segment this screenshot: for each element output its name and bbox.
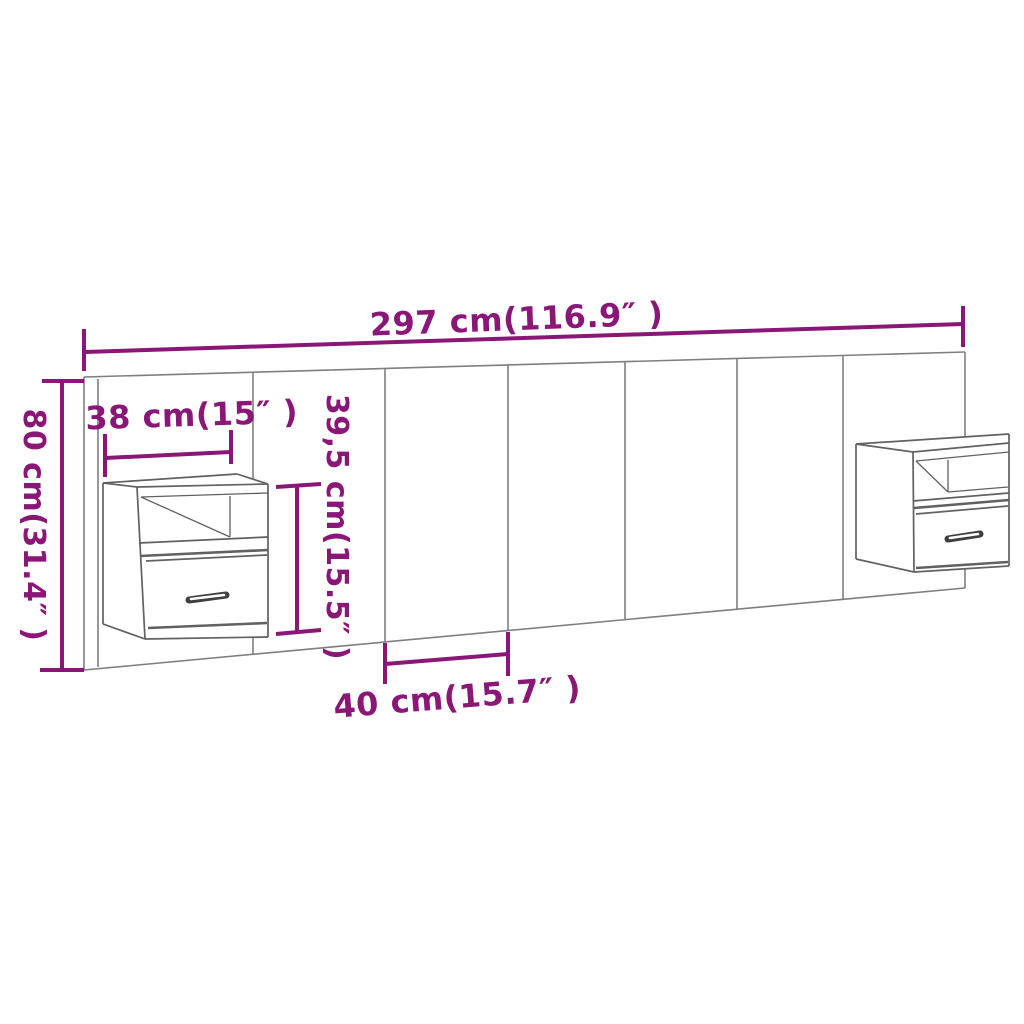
diagram-canvas: 297 cm(116.9″ ) 80 cm(31.4″ ) 38 cm(15″ … <box>0 0 1024 1024</box>
cabinet-front-left-edge <box>913 452 914 572</box>
left-cabinet <box>103 474 268 639</box>
dimension-line <box>105 452 231 458</box>
dimension-tick <box>276 484 321 487</box>
left-drawer-handle <box>189 595 226 600</box>
cabinet-width-dimension: 38 cm(15″ ) <box>85 393 299 477</box>
cabinet-width-label: 38 cm(15″ ) <box>85 393 299 438</box>
cabinet-height-label: 39,5 cm(15.5″ ) <box>319 394 354 660</box>
total-height-dimension: 80 cm(31.4″ ) <box>16 381 84 670</box>
cabinet-height-dimension: 39,5 cm(15.5″ ) <box>276 394 354 660</box>
right-cabinet <box>856 434 1009 572</box>
dimension-line <box>385 654 508 664</box>
right-drawer-handle <box>948 534 980 539</box>
dimension-tick <box>276 630 321 634</box>
total-height-label: 80 cm(31.4″ ) <box>16 408 51 641</box>
panel-width-dimension: 40 cm(15.7″ ) <box>332 632 582 726</box>
panel-width-label: 40 cm(15.7″ ) <box>332 668 582 725</box>
dimension-diagram: 297 cm(116.9″ ) 80 cm(31.4″ ) 38 cm(15″ … <box>0 0 1024 1024</box>
headboard-top-edge <box>84 352 965 377</box>
total-width-dimension: 297 cm(116.9″ ) <box>84 294 963 371</box>
